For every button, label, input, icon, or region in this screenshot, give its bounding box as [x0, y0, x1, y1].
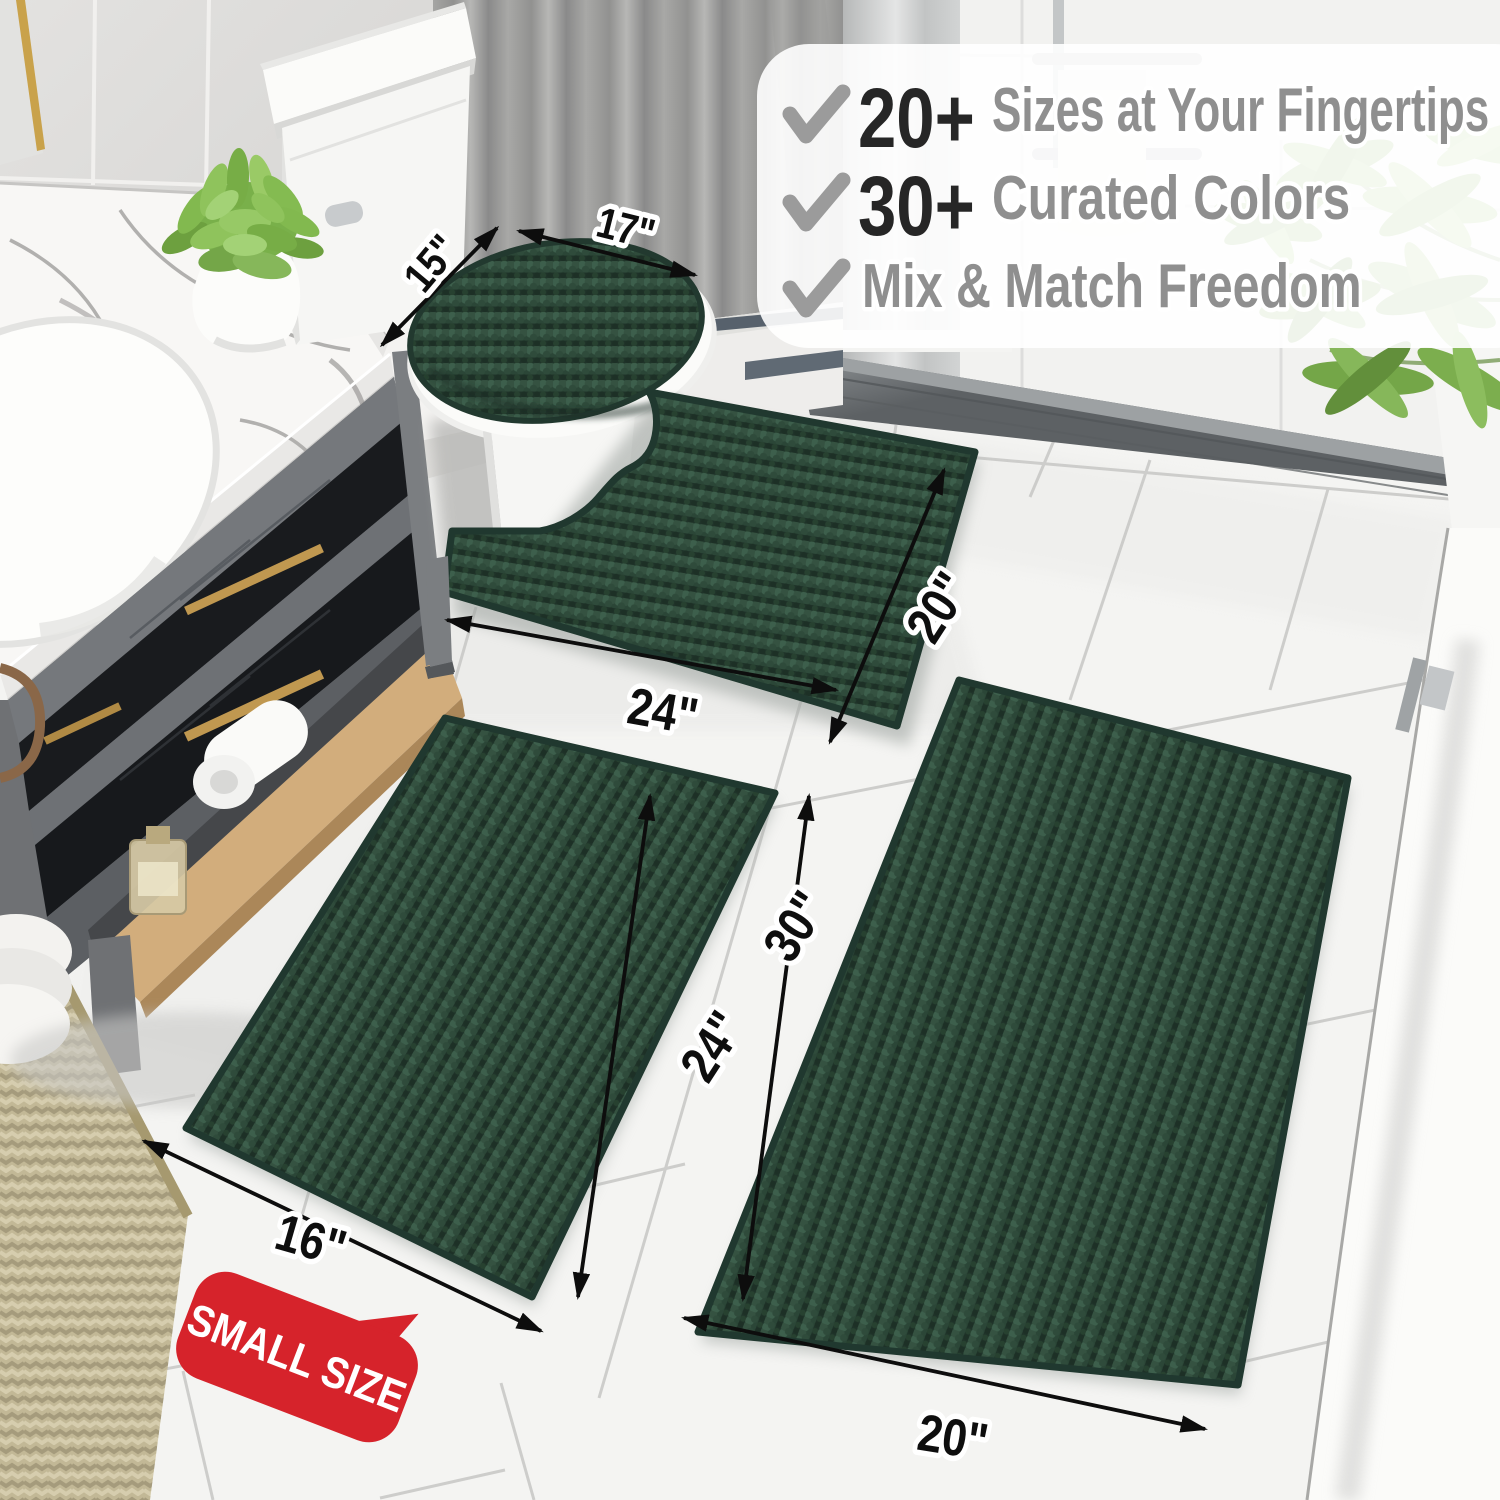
svg-text:20+: 20+: [858, 72, 975, 166]
svg-text:Curated Colors: Curated Colors: [992, 163, 1350, 233]
svg-text:24": 24": [623, 677, 702, 746]
svg-text:30+: 30+: [858, 160, 975, 254]
svg-text:Mix & Match Freedom: Mix & Match Freedom: [862, 251, 1362, 320]
svg-text:Sizes at Your Fingertips: Sizes at Your Fingertips: [992, 76, 1489, 145]
svg-text:20": 20": [914, 1404, 992, 1472]
